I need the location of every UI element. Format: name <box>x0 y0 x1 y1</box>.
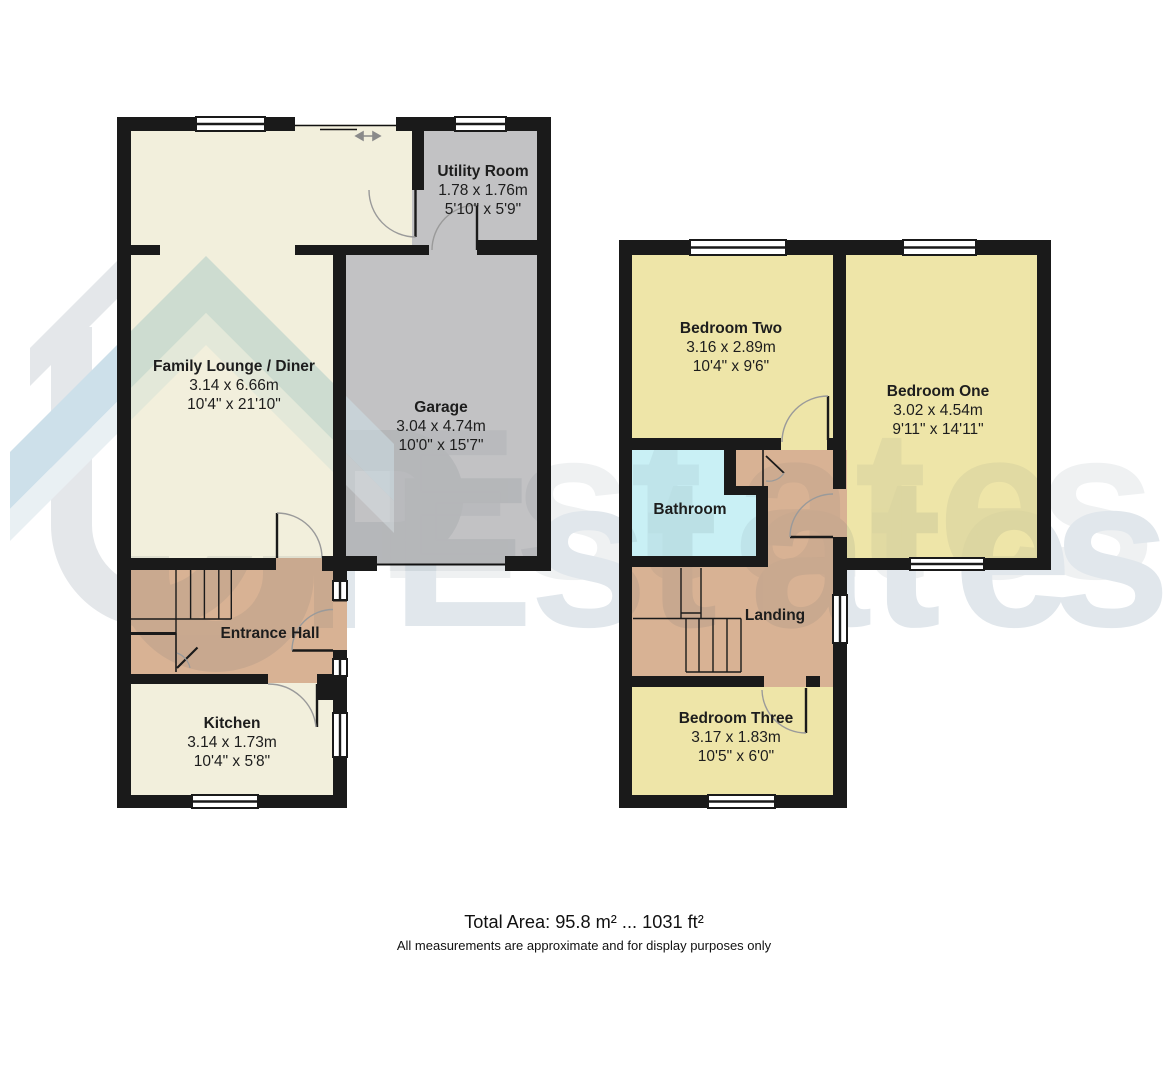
svg-text:Entrance Hall: Entrance Hall <box>220 625 319 642</box>
svg-text:1.78 x 1.76m: 1.78 x 1.76m <box>438 182 528 199</box>
svg-text:3.16 x 2.89m: 3.16 x 2.89m <box>686 339 776 356</box>
svg-text:9'11" x 14'11": 9'11" x 14'11" <box>892 421 983 438</box>
svg-text:Bedroom One: Bedroom One <box>887 383 990 400</box>
svg-text:3.04 x 4.74m: 3.04 x 4.74m <box>396 418 486 435</box>
svg-text:3.17 x 1.83m: 3.17 x 1.83m <box>691 729 781 746</box>
svg-text:3.14 x 1.73m: 3.14 x 1.73m <box>187 734 277 751</box>
svg-text:Family Lounge / Diner: Family Lounge / Diner <box>153 358 315 375</box>
svg-text:Kitchen: Kitchen <box>204 715 261 732</box>
svg-text:3.02 x 4.54m: 3.02 x 4.54m <box>893 402 983 419</box>
svg-text:Garage: Garage <box>414 399 468 416</box>
svg-text:5'10" x 5'9": 5'10" x 5'9" <box>445 201 521 218</box>
svg-text:10'5" x 6'0": 10'5" x 6'0" <box>698 748 774 765</box>
svg-text:Bedroom Three: Bedroom Three <box>679 710 794 727</box>
svg-text:Bathroom: Bathroom <box>653 501 726 518</box>
svg-text:Landing: Landing <box>745 607 805 624</box>
svg-text:All measurements are approxima: All measurements are approximate and for… <box>397 938 772 953</box>
svg-text:10'4" x 21'10": 10'4" x 21'10" <box>187 396 281 413</box>
svg-text:Total Area: 95.8 m² ... 1031 f: Total Area: 95.8 m² ... 1031 ft² <box>464 912 704 932</box>
svg-text:10'4" x 9'6": 10'4" x 9'6" <box>693 358 769 375</box>
svg-text:10'4" x 5'8": 10'4" x 5'8" <box>194 753 270 770</box>
svg-text:Bedroom Two: Bedroom Two <box>680 320 782 337</box>
svg-text:Utility Room: Utility Room <box>437 163 528 180</box>
svg-text:3.14 x 6.66m: 3.14 x 6.66m <box>189 377 279 394</box>
svg-text:10'0" x 15'7": 10'0" x 15'7" <box>398 437 483 454</box>
